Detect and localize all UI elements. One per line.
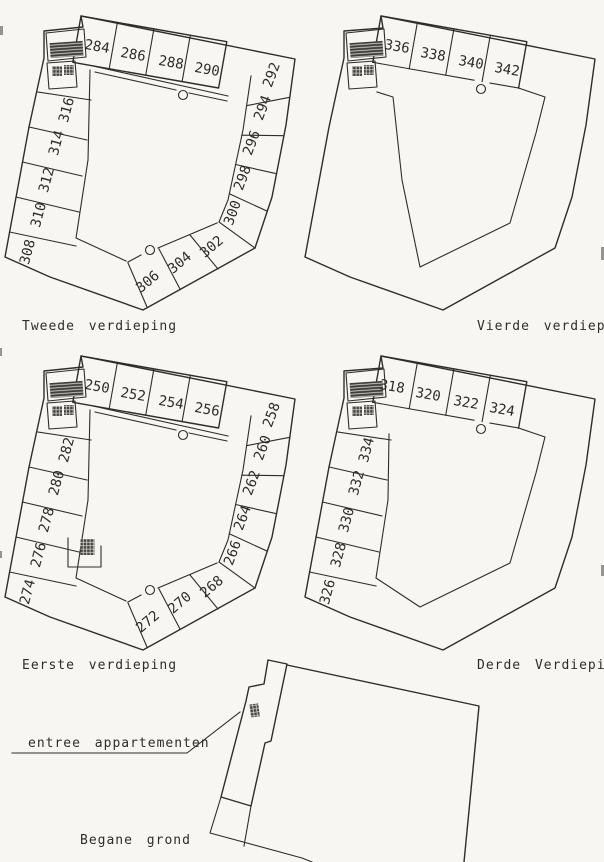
entrance-strip-outline (221, 660, 287, 806)
floorplan-eerste (5, 356, 295, 650)
room-number: 274 (17, 578, 39, 607)
floorplan-derde (305, 356, 595, 650)
room-number: 338 (419, 45, 447, 65)
room-number: 276 (28, 541, 50, 570)
room-number: 292 (260, 60, 284, 89)
room-number: 342 (493, 60, 521, 80)
entrance-door-icon (249, 703, 260, 717)
room-number: 284 (83, 37, 111, 57)
room-number: 296 (240, 128, 264, 157)
building-outline (5, 16, 295, 310)
room-number: 270 (165, 589, 195, 618)
room-number: 290 (193, 60, 221, 80)
room-number: 286 (119, 45, 147, 65)
building-outline (305, 356, 595, 650)
room-number: 278 (36, 506, 58, 535)
room-number: 330 (336, 506, 358, 535)
room-number: 336 (383, 37, 411, 57)
room-number: 304 (165, 249, 195, 278)
room-number: 312 (36, 166, 58, 195)
room-number: 322 (452, 393, 480, 413)
inner-courtyard-wall (376, 428, 545, 607)
inner-courtyard-wall (76, 70, 251, 261)
room-number: 262 (240, 468, 264, 497)
scan-artifact (0, 348, 2, 356)
building-outline (287, 665, 479, 862)
room-number: 252 (119, 385, 147, 405)
floor-label-tweede: Tweede verdieping (22, 319, 177, 334)
room-number: 272 (133, 608, 163, 637)
inner-courtyard-wall (377, 88, 545, 267)
door-swing-icon (477, 425, 486, 434)
door-swing-icon (477, 85, 486, 94)
corridor-walls (93, 66, 228, 262)
room-number: 256 (193, 400, 221, 420)
room-number: 254 (157, 393, 185, 413)
building-outline (305, 16, 595, 310)
floorplan-canvas: 284 286 288 290 292 294 296 298 300 302 … (0, 0, 604, 862)
scan-artifact (0, 26, 3, 35)
room-number: 314 (46, 129, 68, 158)
room-number: 288 (157, 53, 185, 73)
floor-label-eerste: Eerste verdieping (22, 658, 177, 673)
cropped-lower-walls (210, 797, 312, 862)
room-number: 306 (133, 268, 163, 297)
scan-artifact (0, 551, 2, 558)
room-numbers-derde: 318 320 322 324 326 328 330 332 334 (317, 377, 516, 606)
room-number: 250 (83, 377, 111, 397)
room-number: 316 (56, 96, 78, 125)
room-number: 320 (414, 385, 442, 405)
room-number: 310 (28, 201, 50, 230)
room-number: 328 (328, 541, 350, 570)
room-number: 334 (356, 436, 378, 465)
floor-label-begane-grond: Begane grond (80, 833, 191, 848)
stair-elevator-icon (346, 29, 386, 89)
room-number: 280 (46, 469, 68, 498)
room-number: 340 (457, 53, 485, 73)
door-swing-icon (146, 246, 155, 255)
scanned-floorplan-sheet: 284 286 288 290 292 294 296 298 300 302 … (0, 0, 604, 862)
floor-label-vierde: Vierde verdieping (477, 319, 604, 334)
floorplan-vierde (305, 16, 595, 310)
floorplan-begane-grond (12, 660, 479, 862)
door-swing-icon (179, 91, 188, 100)
room-numbers-vierde: 336 338 340 342 (383, 37, 521, 80)
room-number: 294 (251, 93, 275, 122)
room-number: 268 (197, 573, 227, 602)
room-number: 260 (251, 433, 275, 462)
room-number: 326 (317, 578, 339, 607)
floorplan-tweede (5, 16, 295, 310)
elevator-shaft-icon (81, 539, 95, 555)
room-number: 308 (17, 238, 39, 267)
entree-annotation: entree appartementen (28, 736, 210, 751)
room-number: 302 (197, 233, 227, 262)
room-number: 300 (221, 198, 245, 227)
room-number: 258 (260, 400, 284, 429)
room-number: 332 (346, 469, 368, 498)
floor-label-derde: Derde Verdieping (477, 658, 604, 673)
room-number: 266 (221, 538, 245, 567)
room-number: 282 (56, 436, 78, 465)
room-number: 324 (488, 400, 516, 420)
stair-elevator-icon (46, 29, 86, 89)
